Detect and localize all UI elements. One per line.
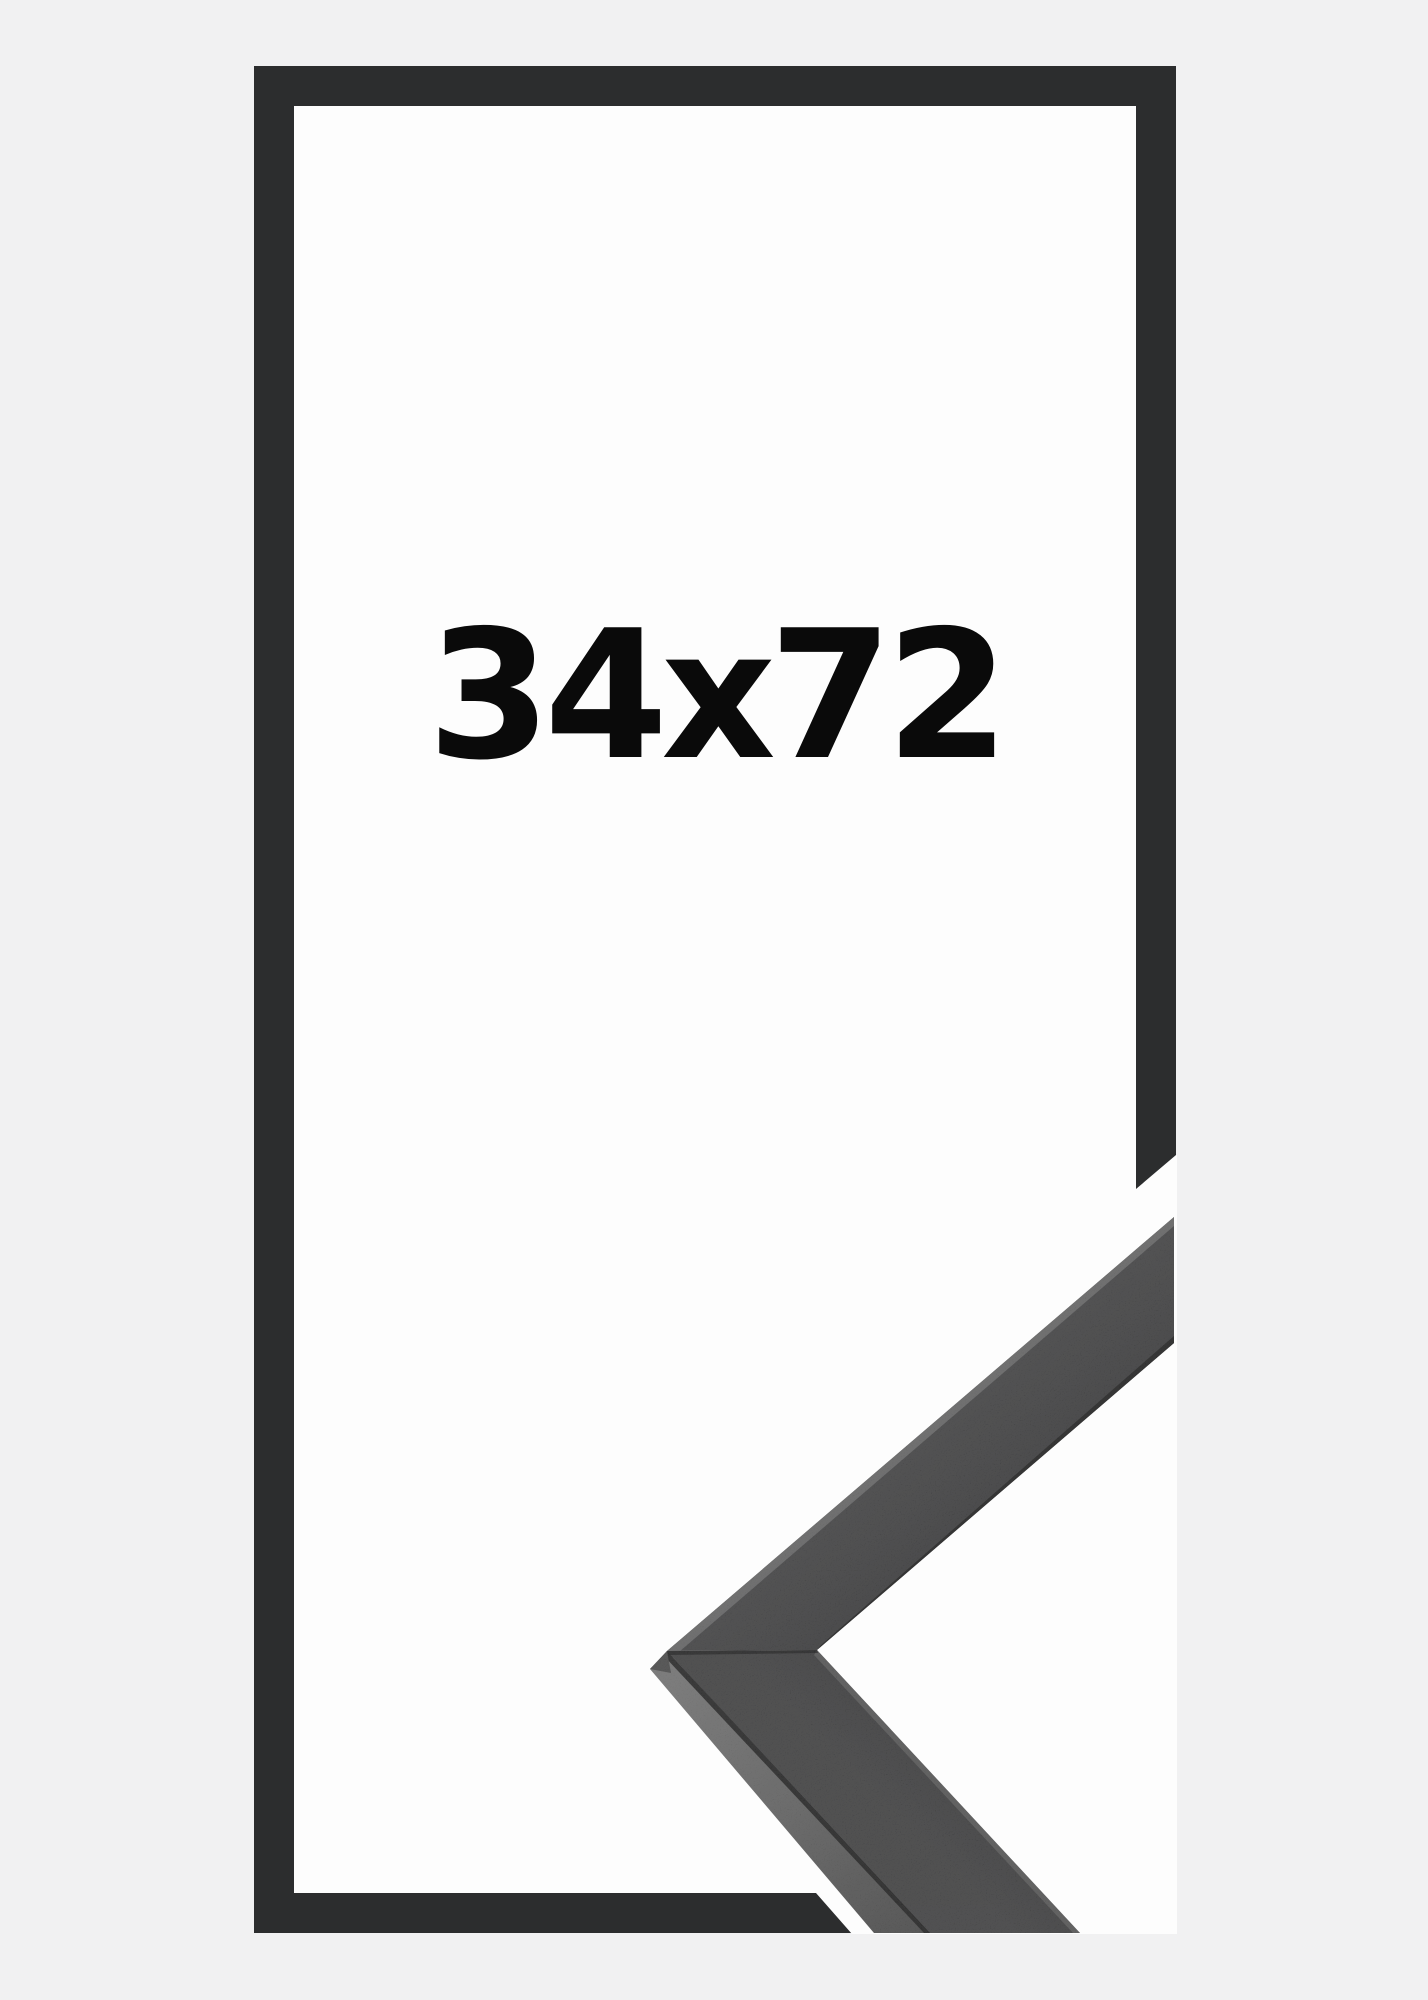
product-image: 34x72 — [0, 0, 1428, 2000]
frame-outline-graphic — [254, 66, 1176, 1933]
size-label-text: 34x72 — [427, 592, 1002, 799]
size-label: 34x72 — [254, 520, 1176, 870]
